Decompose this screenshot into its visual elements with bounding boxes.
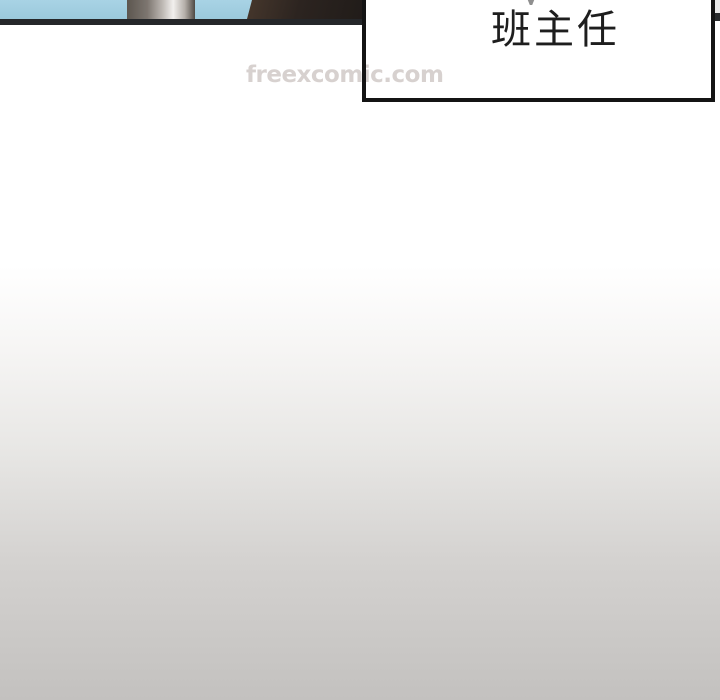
speech-bubble-text: 班主任 (491, 10, 620, 50)
panel-pole (127, 0, 195, 19)
comic-panel-strip (0, 0, 362, 25)
comic-page: freexcomic.com 班主任 (0, 0, 720, 700)
speech-bubble: 班主任 (362, 0, 715, 102)
panel-bottom-edge (0, 19, 362, 25)
panel-dark-figure (247, 0, 362, 19)
panel-right-sliver (715, 0, 720, 14)
